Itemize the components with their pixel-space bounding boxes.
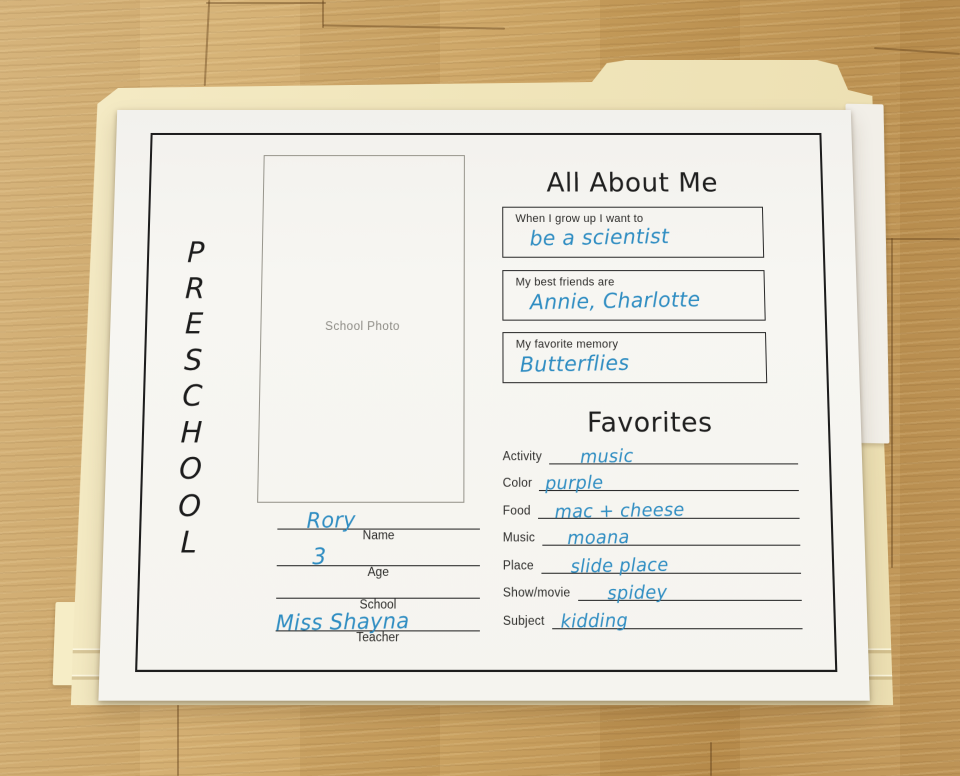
favorites-list: Activity music Color purple Food mac + c… [503,437,803,629]
favorite-place-line: slide place [541,548,801,573]
all-about-me-title: All About Me [502,168,763,198]
school-photo-placeholder: School Photo [257,155,465,503]
wood-plank-seam [886,238,960,240]
wood-plank-seam [206,2,326,4]
school-photo-label: School Photo [325,320,400,332]
favorite-food-answer: mac + cheese [554,499,685,523]
grow-up-prompt-box: When I grow up I want to be a scientist [502,207,764,258]
teacher-field: Miss Shayna Teacher [276,598,480,632]
favorite-food-line: mac + cheese [538,494,800,519]
side-letter: O [165,451,216,488]
favorite-place-label: Place [503,559,541,573]
favorite-activity-answer: music [580,445,634,467]
favorite-music-line: moana [542,521,800,546]
favorite-place-row: Place slide place [503,546,801,574]
favorite-color-answer: purple [545,472,604,494]
best-friends-prompt-box: My best friends are Annie, Charlotte [502,270,765,321]
wood-plank-seam [323,24,505,29]
favorite-activity-line: music [549,440,798,464]
favorite-show-row: Show/movie spidey [503,573,802,601]
side-letter: O [164,487,215,524]
favorite-music-label: Music [503,532,543,546]
favorite-place-answer: slide place [570,554,669,577]
teacher-field-label: Teacher [275,631,480,644]
wood-plank-seam [710,742,712,776]
side-letter: L [163,524,214,561]
side-letter: C [167,378,217,414]
side-letter: E [169,306,219,342]
favorite-subject-line: kidding [552,604,803,629]
favorite-music-row: Music moana [503,518,801,545]
side-letter: S [168,342,218,378]
favorite-color-row: Color purple [503,464,799,491]
favorite-memory-prompt-box: My favorite memory Butterflies [502,332,767,383]
age-field: 3 Age [277,533,480,566]
favorite-music-answer: moana [567,527,630,550]
school-field: School [276,565,480,599]
favorite-show-answer: spidey [607,582,668,605]
favorite-color-line: purple [539,467,799,491]
side-letter: H [166,414,216,450]
worksheet-paper: P R E S C H O O L School Photo Rory Name… [98,110,869,701]
favorite-activity-label: Activity [503,450,550,464]
favorite-food-label: Food [503,504,538,518]
favorite-subject-answer: kidding [560,610,628,633]
favorite-subject-label: Subject [503,615,552,629]
name-field: Rory Name [277,496,480,529]
favorite-memory-answer: Butterflies [520,348,766,377]
side-letter: P [171,235,221,270]
wood-plank-seam [177,700,179,776]
favorite-color-label: Color [503,477,540,491]
favorite-subject-row: Subject kidding [503,601,803,629]
favorite-show-line: spidey [578,576,802,601]
side-letter: R [170,271,220,307]
wood-plank-seam [874,47,960,55]
wood-plank-seam [204,0,210,86]
wood-plank-seam [891,238,893,568]
favorite-activity-row: Activity music [503,437,799,464]
best-friends-answer: Annie, Charlotte [530,286,765,315]
preschool-vertical-title: P R E S C H O O L [163,235,220,561]
grow-up-answer: be a scientist [529,222,763,251]
favorite-show-label: Show/movie [503,587,578,601]
folder-scene: P R E S C H O O L School Photo Rory Name… [71,86,893,694]
favorite-food-row: Food mac + cheese [503,491,800,518]
favorites-title: Favorites [503,407,798,439]
